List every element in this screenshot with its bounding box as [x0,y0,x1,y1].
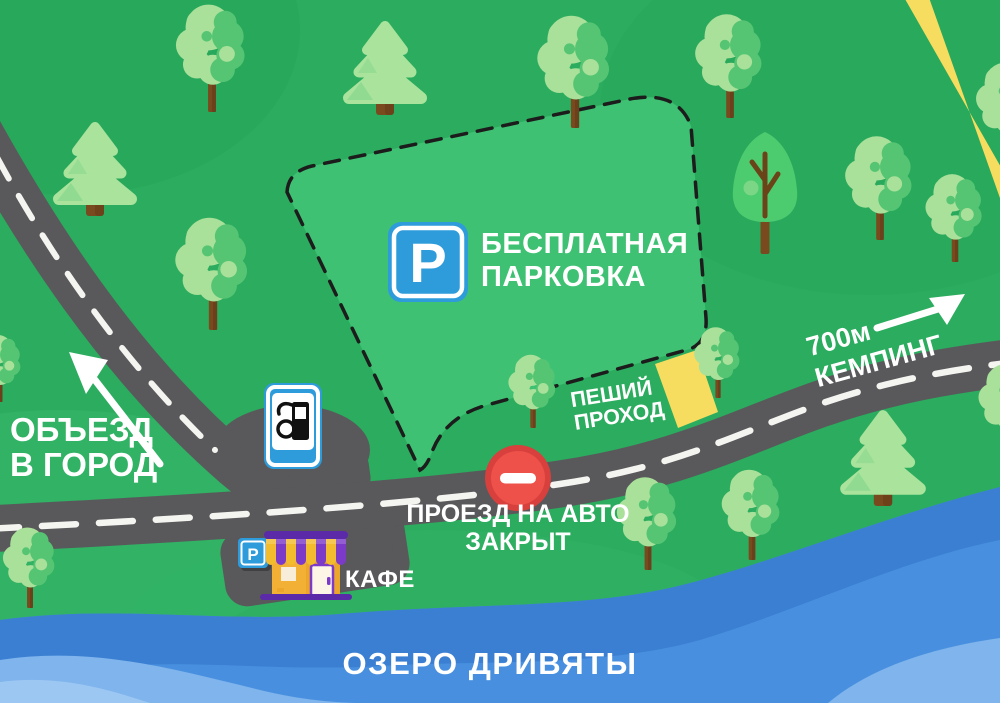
illustrated-map: ОЗЕРО ДРИВЯТЫ P БЕСПЛАТНАЯ ПАРКОВКА ПРОЕ… [0,0,1000,703]
cafe-building [260,531,352,600]
cafe-label: КАФЕ [345,566,415,593]
svg-text:P: P [247,545,258,564]
map-canvas: ОЗЕРО ДРИВЯТЫ P БЕСПЛАТНАЯ ПАРКОВКА ПРОЕ… [0,0,1000,703]
free-parking-label-line1: БЕСПЛАТНАЯ [481,228,688,260]
lake-label: ОЗЕРО ДРИВЯТЫ [343,646,638,681]
fuel-pump-icon [272,393,314,450]
road-closed-label-line2: ЗАКРЫТ [465,528,570,556]
free-parking-label-line2: ПАРКОВКА [481,261,646,293]
gas-station-sign [264,383,322,469]
free-parking-sign: P [388,222,468,302]
detour-label-line2: В ГОРОД [10,446,157,483]
no-entry-icon [500,473,536,484]
cafe-awning [264,531,348,565]
road-closed-label-line1: ПРОЕЗД НА АВТО [406,500,629,528]
parking-icon: P [409,231,446,294]
